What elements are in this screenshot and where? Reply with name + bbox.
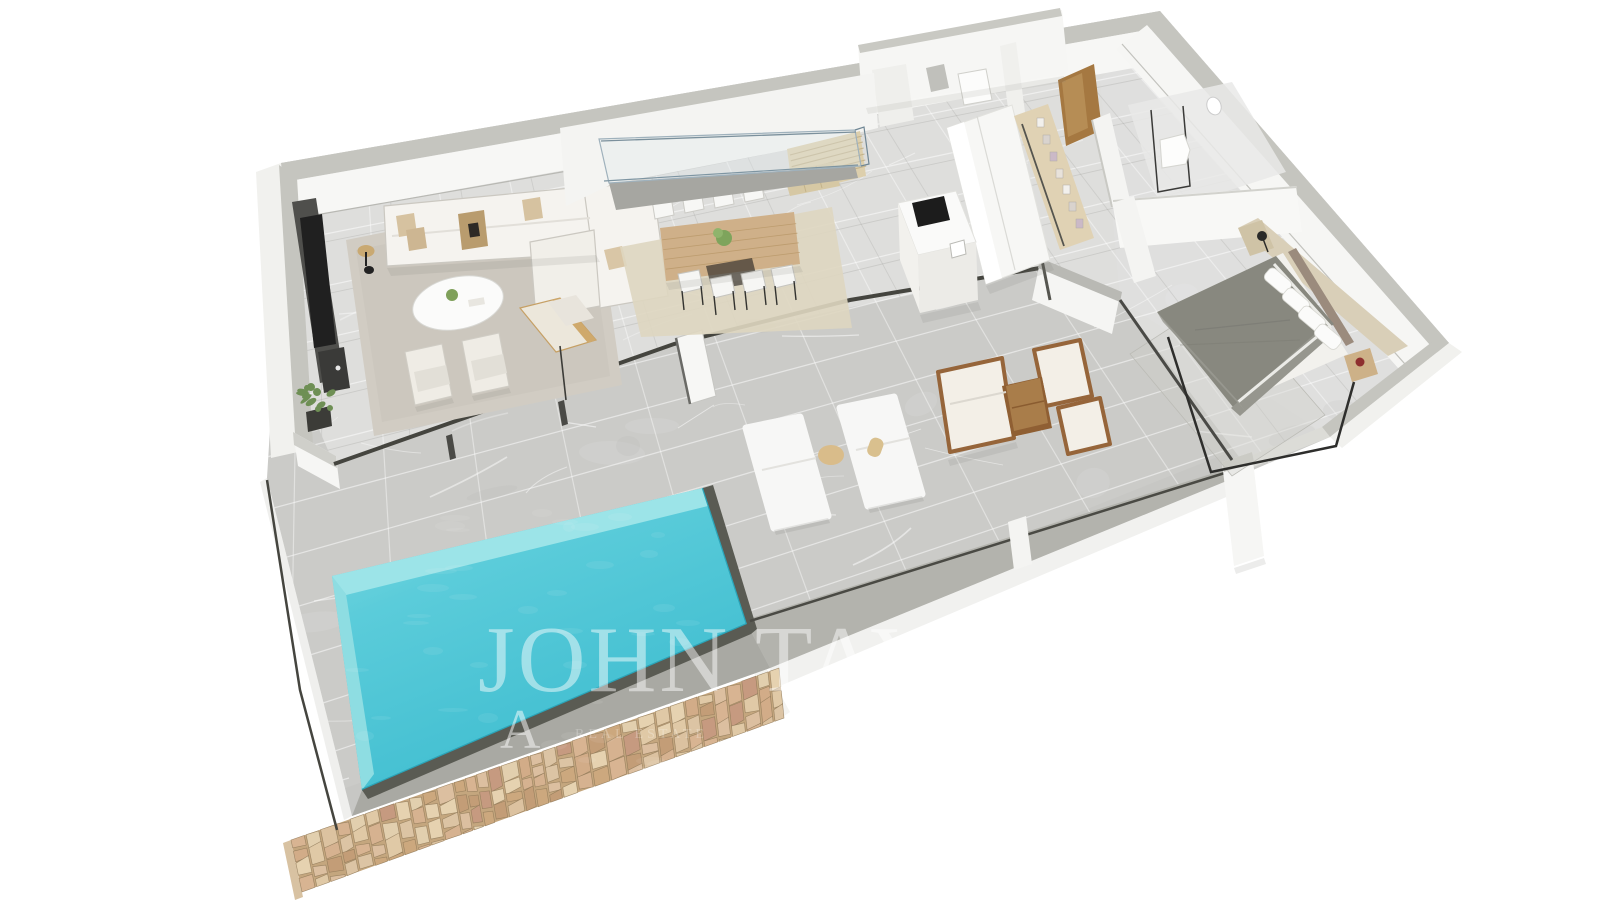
svg-text:REAL ESTATE: REAL ESTATE <box>575 727 708 742</box>
svg-text:JOHN TAYLOR: JOHN TAYLOR <box>478 608 1138 712</box>
svg-text:A: A <box>500 699 541 761</box>
